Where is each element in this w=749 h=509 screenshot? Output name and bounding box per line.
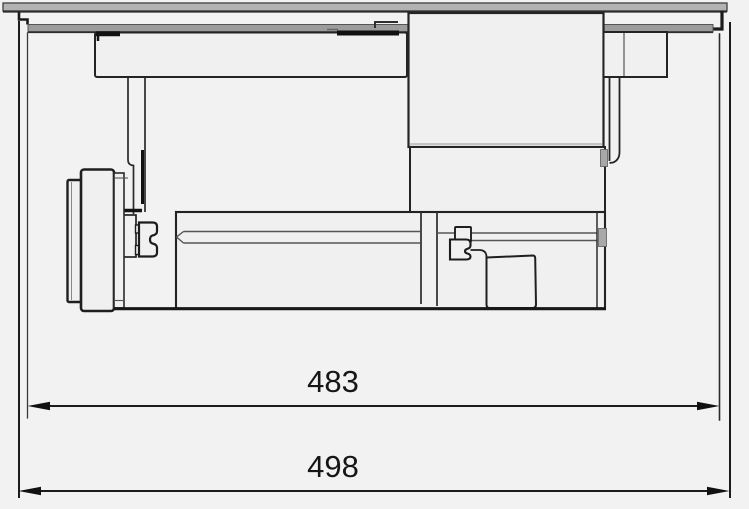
lower-right-box [410, 147, 608, 212]
drawing-canvas: 483 498 [0, 0, 749, 509]
blower-body [81, 170, 114, 312]
dimension-label-outer: 498 [307, 449, 359, 484]
side-fitting [601, 150, 608, 167]
dimension-label-inner: 483 [307, 364, 359, 399]
blower-flange [68, 170, 129, 312]
duct-pin [599, 229, 607, 247]
exhaust-duct-box [176, 212, 607, 309]
mount-plate [114, 173, 124, 308]
right-sub-box [487, 256, 537, 309]
technical-drawing: 483 498 [0, 0, 749, 509]
right-housing-box [409, 13, 604, 147]
